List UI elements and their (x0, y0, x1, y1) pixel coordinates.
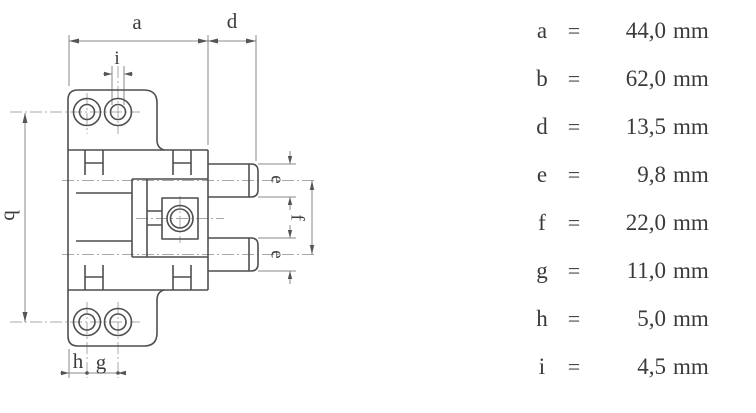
centerlines (10, 66, 316, 378)
row-symbol: e (530, 162, 554, 188)
equals-sign: = (554, 162, 594, 188)
table-row: g = 11,0 mm (530, 256, 740, 286)
table-row: a = 44,0 mm (530, 16, 740, 46)
table-row: i = 4,5 mm (530, 352, 740, 382)
row-value: 44,0 (594, 18, 666, 44)
row-symbol: f (530, 210, 554, 236)
dim-label-i: i (106, 49, 128, 68)
equals-sign: = (554, 114, 594, 140)
dim-label-b: b (1, 205, 22, 227)
table-row: e = 9,8 mm (530, 160, 740, 190)
dim-label-e-bottom: e (268, 244, 287, 266)
row-value: 5,0 (594, 306, 666, 332)
holes (74, 99, 194, 336)
row-value: 9,8 (594, 162, 666, 188)
row-symbol: g (530, 258, 554, 284)
slide-channel (76, 193, 132, 241)
row-unit: mm (673, 306, 709, 332)
row-value: 11,0 (594, 258, 666, 284)
equals-sign: = (554, 306, 594, 332)
table-row: f = 22,0 mm (530, 208, 740, 238)
row-unit: mm (673, 114, 709, 140)
bottom-flange (68, 290, 164, 346)
equals-sign: = (554, 354, 594, 380)
dim-label-g: g (90, 352, 112, 373)
equals-sign: = (554, 258, 594, 284)
row-unit: mm (673, 354, 709, 380)
row-unit: mm (673, 210, 709, 236)
row-symbol: b (530, 66, 554, 92)
equals-sign: = (554, 210, 594, 236)
dimension-arrows (23, 39, 315, 376)
row-value: 4,5 (594, 354, 666, 380)
technical-drawing-page: a d i b e f e h g a = 44,0 mm b = 62,0 m… (0, 0, 756, 413)
row-value: 22,0 (594, 210, 666, 236)
row-symbol: h (530, 306, 554, 332)
row-unit: mm (673, 66, 709, 92)
equals-sign: = (554, 18, 594, 44)
dim-label-f: f (288, 207, 307, 229)
row-unit: mm (673, 18, 709, 44)
row-value: 13,5 (594, 114, 666, 140)
row-symbol: d (530, 114, 554, 140)
row-value: 62,0 (594, 66, 666, 92)
dim-label-a: a (126, 12, 148, 33)
dim-label-e-top: e (268, 169, 287, 191)
table-row: b = 62,0 mm (530, 64, 740, 94)
dim-label-d: d (221, 11, 243, 32)
main-body (68, 150, 208, 290)
table-row: h = 5,0 mm (530, 304, 740, 334)
row-symbol: a (530, 18, 554, 44)
row-unit: mm (673, 162, 709, 188)
equals-sign: = (554, 66, 594, 92)
row-unit: mm (673, 258, 709, 284)
dim-label-h: h (67, 351, 89, 372)
table-row: d = 13,5 mm (530, 112, 740, 142)
row-symbol: i (530, 354, 554, 380)
